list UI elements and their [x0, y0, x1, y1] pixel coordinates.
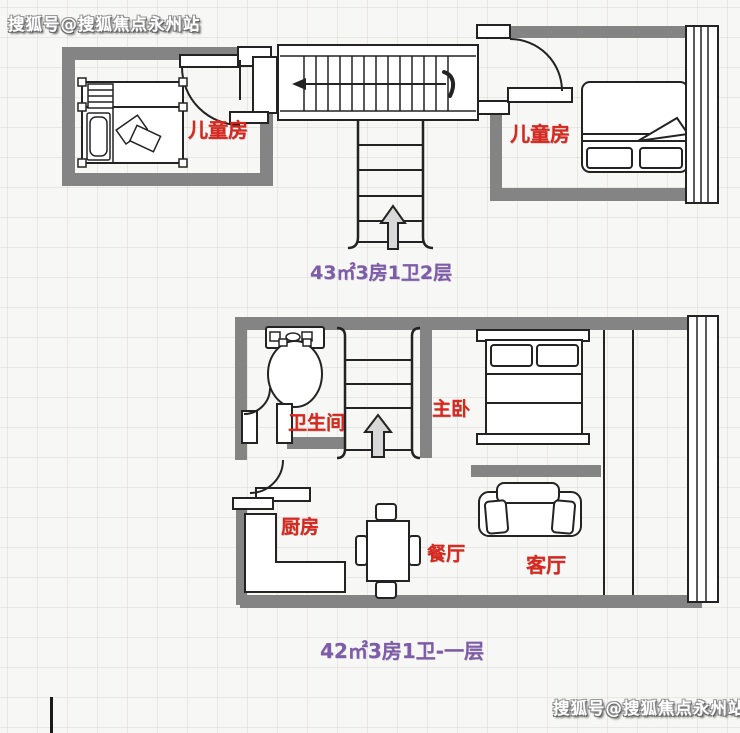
- upper-plan-caption: 43㎡3房1卫2层: [310, 264, 450, 283]
- dining-table: [356, 504, 420, 598]
- tick-mark: [50, 697, 53, 733]
- lower-window: [688, 316, 718, 602]
- room-label-dining: 餐厅: [427, 545, 465, 564]
- bunk-bed: [78, 78, 187, 167]
- balcony-divider-lines: [604, 330, 633, 595]
- upper-window: [686, 26, 718, 203]
- room-label-living: 客厅: [526, 555, 566, 575]
- watermark-top-left: 搜狐号@搜狐焦点永州站: [8, 13, 201, 36]
- kitchen-door: [233, 460, 310, 509]
- floor-plan-image: 儿童房 儿童房 卫生间 主卧 厨房 餐厅 客厅 43㎡3房1卫2层 42㎡3房1…: [0, 0, 740, 733]
- lower-floor-plan: [233, 316, 718, 608]
- upper-floor-plan: [62, 25, 718, 249]
- master-bed: [477, 330, 589, 444]
- room-label-bathroom: 卫生间: [288, 414, 345, 433]
- room-label-kitchen: 厨房: [281, 518, 319, 537]
- floor-plan-drawing: [0, 0, 740, 733]
- lower-ladder: [337, 328, 420, 458]
- lower-plan-caption: 42㎡3房1卫-一层: [320, 641, 480, 661]
- room-label-left-child: 儿童房: [188, 120, 248, 140]
- staircase: [278, 45, 478, 120]
- room-label-master-bedroom: 主卧: [432, 400, 470, 419]
- upper-ladder: [348, 121, 433, 249]
- watermark-bottom-right: 搜狐号@搜狐焦点永州站: [553, 697, 740, 720]
- room-label-right-child: 儿童房: [510, 124, 570, 144]
- sofa: [479, 483, 581, 536]
- upper-right-bed: [582, 82, 688, 172]
